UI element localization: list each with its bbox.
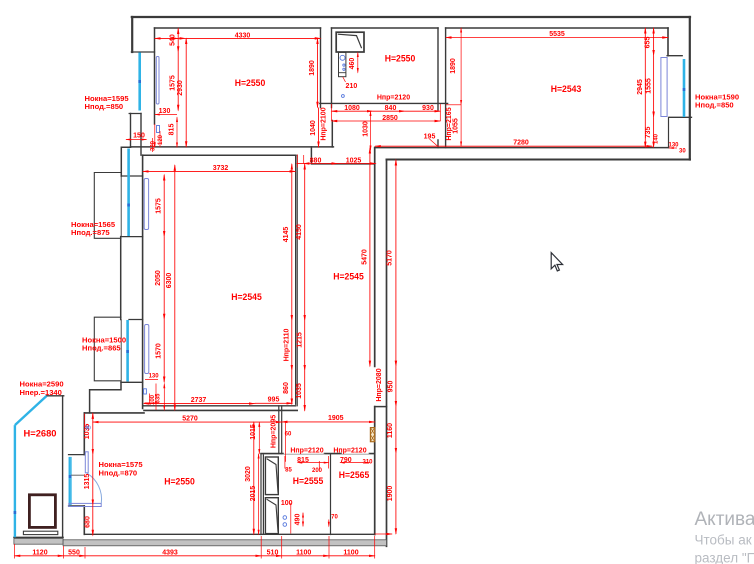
svg-text:3732: 3732 — [213, 165, 229, 172]
svg-text:Hпр=2100: Hпр=2100 — [320, 107, 327, 140]
svg-text:635: 635 — [155, 393, 161, 404]
svg-text:раздел "П: раздел "П — [695, 551, 754, 564]
svg-text:1080: 1080 — [344, 105, 360, 112]
svg-text:150: 150 — [133, 133, 145, 140]
svg-text:Hпр=2110: Hпр=2110 — [284, 328, 291, 361]
svg-text:1120: 1120 — [32, 549, 47, 556]
svg-text:140: 140 — [654, 133, 660, 144]
svg-text:3020: 3020 — [245, 466, 252, 482]
svg-text:Hпод.=875: Hпод.=875 — [71, 228, 110, 237]
svg-text:H=2550: H=2550 — [235, 77, 266, 88]
svg-text:Hпод.=850: Hпод.=850 — [85, 102, 124, 111]
svg-text:H=2543: H=2543 — [551, 83, 582, 94]
svg-text:1025: 1025 — [346, 157, 362, 164]
svg-text:2015: 2015 — [250, 486, 257, 502]
svg-text:5535: 5535 — [549, 31, 565, 38]
svg-text:120: 120 — [158, 134, 164, 145]
svg-text:840: 840 — [385, 105, 397, 112]
svg-text:815: 815 — [168, 124, 175, 136]
svg-text:70: 70 — [331, 515, 338, 521]
svg-text:7280: 7280 — [513, 140, 529, 147]
svg-text:995: 995 — [268, 397, 280, 404]
svg-text:2737: 2737 — [191, 397, 207, 404]
svg-text:320: 320 — [150, 140, 156, 151]
svg-text:Чтобы ак: Чтобы ак — [695, 533, 752, 548]
svg-text:930: 930 — [422, 105, 434, 112]
svg-text:1015: 1015 — [250, 424, 257, 440]
svg-text:H=2680: H=2680 — [24, 428, 57, 439]
svg-text:1555: 1555 — [645, 78, 652, 94]
svg-text:Hпр=2120: Hпр=2120 — [377, 95, 410, 102]
svg-text:540: 540 — [170, 34, 177, 46]
svg-text:210: 210 — [346, 83, 358, 90]
svg-text:880: 880 — [310, 157, 322, 164]
svg-text:860: 860 — [283, 382, 290, 394]
svg-text:195: 195 — [424, 134, 436, 141]
svg-text:5270: 5270 — [182, 415, 198, 422]
svg-text:1160: 1160 — [387, 423, 394, 438]
svg-text:Актива: Актива — [695, 509, 754, 530]
svg-text:1575: 1575 — [155, 198, 162, 214]
svg-text:310: 310 — [362, 460, 373, 466]
svg-text:1890: 1890 — [450, 58, 457, 74]
svg-text:1905: 1905 — [328, 415, 344, 422]
svg-text:735: 735 — [645, 127, 652, 139]
svg-text:Hпр=2120: Hпр=2120 — [333, 447, 366, 454]
svg-text:Hпод.=865: Hпод.=865 — [82, 344, 121, 353]
svg-text:1570: 1570 — [155, 343, 162, 359]
svg-text:130: 130 — [159, 108, 171, 115]
svg-text:2850: 2850 — [382, 115, 398, 122]
svg-text:H=2550: H=2550 — [164, 476, 195, 487]
svg-text:1215: 1215 — [296, 332, 303, 348]
svg-text:Hпр=2080: Hпр=2080 — [376, 368, 383, 401]
svg-text:1035: 1035 — [296, 383, 303, 399]
svg-text:2930: 2930 — [177, 80, 184, 96]
svg-text:2945: 2945 — [637, 79, 644, 95]
svg-text:655: 655 — [644, 37, 651, 49]
svg-text:5170: 5170 — [387, 250, 394, 266]
svg-text:1100: 1100 — [296, 549, 311, 556]
svg-text:1040: 1040 — [310, 120, 317, 136]
svg-text:6300: 6300 — [166, 273, 173, 289]
svg-text:1030: 1030 — [362, 121, 369, 137]
svg-text:30: 30 — [679, 149, 686, 155]
svg-text:815: 815 — [297, 457, 309, 464]
svg-text:5470: 5470 — [361, 249, 368, 265]
svg-text:1900: 1900 — [387, 486, 394, 502]
svg-text:950: 950 — [388, 381, 395, 393]
svg-text:H=2545: H=2545 — [333, 271, 364, 282]
svg-text:Hпер.=1340: Hпер.=1340 — [20, 388, 62, 397]
svg-text:60: 60 — [285, 432, 292, 438]
svg-text:1100: 1100 — [343, 549, 358, 556]
svg-text:90: 90 — [85, 426, 91, 432]
svg-text:130: 130 — [149, 374, 160, 380]
svg-text:4330: 4330 — [235, 33, 251, 40]
svg-text:550: 550 — [68, 549, 80, 556]
svg-text:4393: 4393 — [162, 549, 178, 556]
svg-text:680: 680 — [84, 516, 91, 528]
svg-text:490: 490 — [294, 514, 301, 526]
svg-text:1315: 1315 — [84, 474, 91, 490]
svg-text:790: 790 — [340, 457, 352, 464]
svg-text:4150: 4150 — [296, 224, 303, 240]
svg-text:H=2565: H=2565 — [339, 469, 370, 480]
svg-text:200: 200 — [312, 468, 323, 474]
svg-text:Hпр=2120: Hпр=2120 — [290, 447, 323, 454]
svg-text:510: 510 — [267, 549, 279, 556]
svg-text:H=2550: H=2550 — [385, 53, 416, 64]
svg-text:100: 100 — [281, 500, 293, 507]
svg-text:1055: 1055 — [453, 118, 460, 134]
svg-text:85: 85 — [285, 468, 292, 474]
svg-text:460: 460 — [349, 58, 356, 70]
svg-text:1575: 1575 — [170, 75, 177, 91]
svg-text:Hпод.=850: Hпод.=850 — [695, 101, 734, 110]
svg-text:1890: 1890 — [309, 60, 316, 76]
svg-text:H=2555: H=2555 — [293, 475, 324, 486]
svg-text:H=2545: H=2545 — [231, 291, 262, 302]
svg-text:Hпод.=870: Hпод.=870 — [99, 469, 138, 478]
svg-text:130: 130 — [669, 143, 680, 149]
svg-text:4145: 4145 — [283, 227, 290, 243]
svg-text:2050: 2050 — [155, 270, 162, 286]
svg-text:Hпр=2095: Hпр=2095 — [270, 415, 277, 448]
